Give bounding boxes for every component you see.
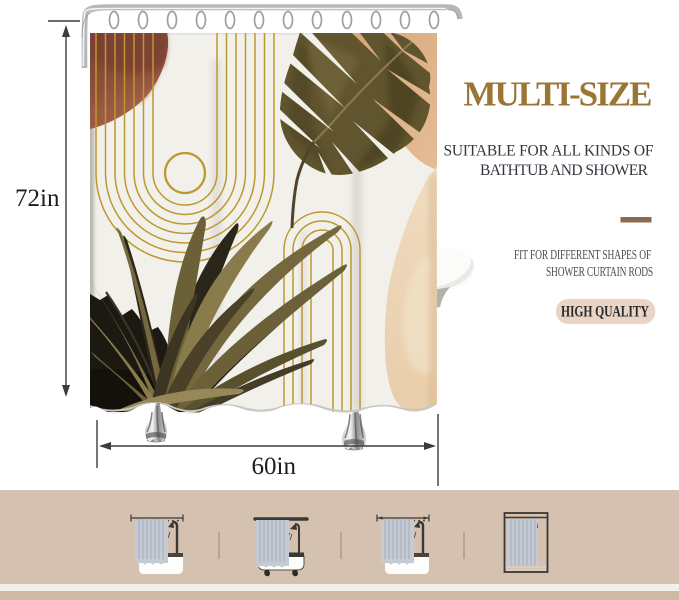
svg-text:60in: 60in [252, 453, 297, 480]
svg-text:72in: 72in [15, 185, 60, 212]
svg-text:MULTI-SIZE: MULTI-SIZE [464, 75, 653, 114]
svg-text:BATHTUB AND SHOWER: BATHTUB AND SHOWER [480, 162, 649, 179]
svg-text:SUITABLE FOR ALL KINDS OF: SUITABLE FOR ALL KINDS OF [444, 142, 654, 159]
svg-text:SHOWER CURTAIN RODS: SHOWER CURTAIN RODS [546, 264, 653, 279]
svg-text:HIGH QUALITY: HIGH QUALITY [561, 304, 649, 321]
svg-text:FIT FOR DIFFERENT SHAPES OF: FIT FOR DIFFERENT SHAPES OF [514, 247, 652, 262]
